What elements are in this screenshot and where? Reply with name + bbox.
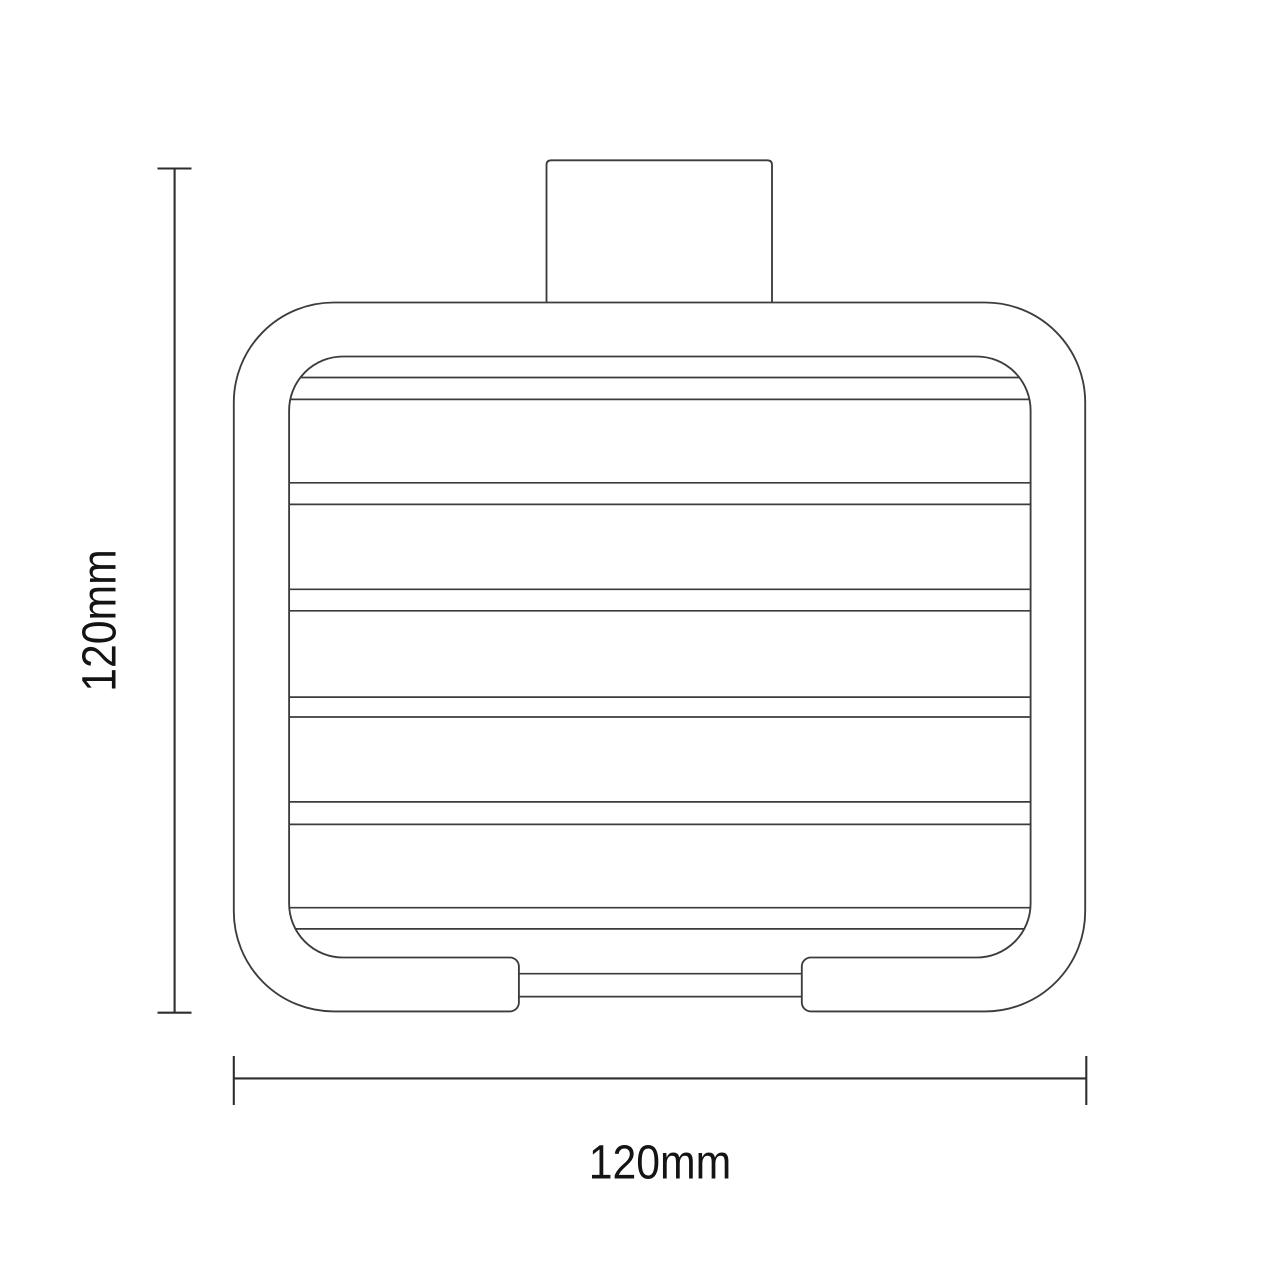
svg-text:120mm: 120mm bbox=[73, 549, 127, 692]
svg-text:120mm: 120mm bbox=[589, 1136, 732, 1190]
